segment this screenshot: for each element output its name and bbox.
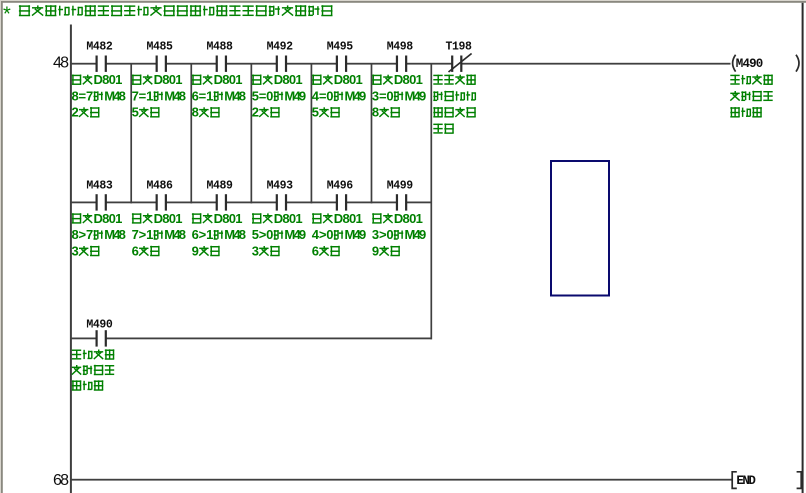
svg-text:D801: D801 — [214, 211, 243, 226]
svg-text:D801: D801 — [274, 72, 303, 87]
svg-text:M493: M493 — [267, 180, 293, 193]
svg-text:D801: D801 — [274, 211, 303, 226]
svg-text:5>0: 5>0 — [252, 227, 274, 242]
svg-text:D801: D801 — [394, 211, 423, 226]
svg-text:M49: M49 — [345, 88, 367, 103]
svg-text:M48: M48 — [164, 88, 186, 103]
svg-text:M492: M492 — [267, 40, 293, 53]
svg-text:M496: M496 — [327, 180, 353, 193]
svg-text:6: 6 — [132, 243, 139, 258]
svg-text:M49: M49 — [345, 227, 367, 242]
svg-text:END: END — [736, 474, 756, 488]
svg-text:D801: D801 — [394, 72, 423, 87]
svg-text:*: * — [3, 4, 11, 26]
svg-text:M49: M49 — [284, 88, 306, 103]
svg-text:3=0: 3=0 — [372, 88, 394, 103]
svg-text:3: 3 — [72, 243, 79, 258]
svg-text:2: 2 — [252, 105, 259, 120]
svg-text:4>0: 4>0 — [312, 227, 334, 242]
svg-text:8=7: 8=7 — [72, 88, 94, 103]
svg-text:M48: M48 — [224, 227, 246, 242]
svg-text:D801: D801 — [94, 72, 123, 87]
svg-text:9: 9 — [372, 243, 379, 258]
svg-text:3>0: 3>0 — [372, 227, 394, 242]
svg-text:M499: M499 — [387, 180, 413, 193]
svg-text:4=0: 4=0 — [312, 88, 334, 103]
svg-text:M486: M486 — [147, 180, 173, 193]
svg-text:3: 3 — [252, 243, 259, 258]
svg-text:M49: M49 — [284, 227, 306, 242]
svg-text:M483: M483 — [86, 180, 112, 193]
svg-text:D801: D801 — [94, 211, 123, 226]
svg-text:8>7: 8>7 — [72, 227, 94, 242]
svg-text:M488: M488 — [207, 40, 233, 53]
svg-text:M489: M489 — [207, 180, 233, 193]
svg-text:D801: D801 — [154, 72, 183, 87]
svg-text:D801: D801 — [214, 72, 243, 87]
svg-text:7=1: 7=1 — [132, 88, 154, 103]
svg-text:M485: M485 — [147, 40, 173, 53]
svg-text:D801: D801 — [334, 72, 363, 87]
svg-text:M48: M48 — [104, 227, 126, 242]
svg-text:M48: M48 — [224, 88, 246, 103]
svg-text:48: 48 — [53, 54, 69, 71]
svg-text:68: 68 — [53, 472, 69, 489]
svg-text:M49: M49 — [405, 227, 427, 242]
svg-text:D801: D801 — [334, 211, 363, 226]
svg-text:M48: M48 — [164, 227, 186, 242]
svg-text:9: 9 — [192, 243, 199, 258]
svg-text:M490: M490 — [736, 57, 764, 71]
svg-text:5=0: 5=0 — [252, 88, 274, 103]
svg-text:T198: T198 — [446, 40, 472, 53]
svg-text:2: 2 — [72, 105, 79, 120]
svg-text:M498: M498 — [387, 40, 413, 53]
svg-text:M482: M482 — [86, 40, 112, 53]
svg-text:6=1: 6=1 — [192, 88, 214, 103]
svg-text:M48: M48 — [104, 88, 126, 103]
svg-text:6: 6 — [312, 243, 319, 258]
svg-text:7>1: 7>1 — [132, 227, 154, 242]
svg-text:6>1: 6>1 — [192, 227, 214, 242]
svg-text:D801: D801 — [154, 211, 183, 226]
svg-text:8: 8 — [192, 105, 199, 120]
svg-text:M495: M495 — [327, 40, 353, 53]
svg-text:5: 5 — [132, 105, 139, 120]
svg-text:8: 8 — [372, 105, 379, 120]
svg-text:M490: M490 — [86, 318, 112, 331]
svg-text:M49: M49 — [405, 88, 427, 103]
svg-text:5: 5 — [312, 105, 319, 120]
